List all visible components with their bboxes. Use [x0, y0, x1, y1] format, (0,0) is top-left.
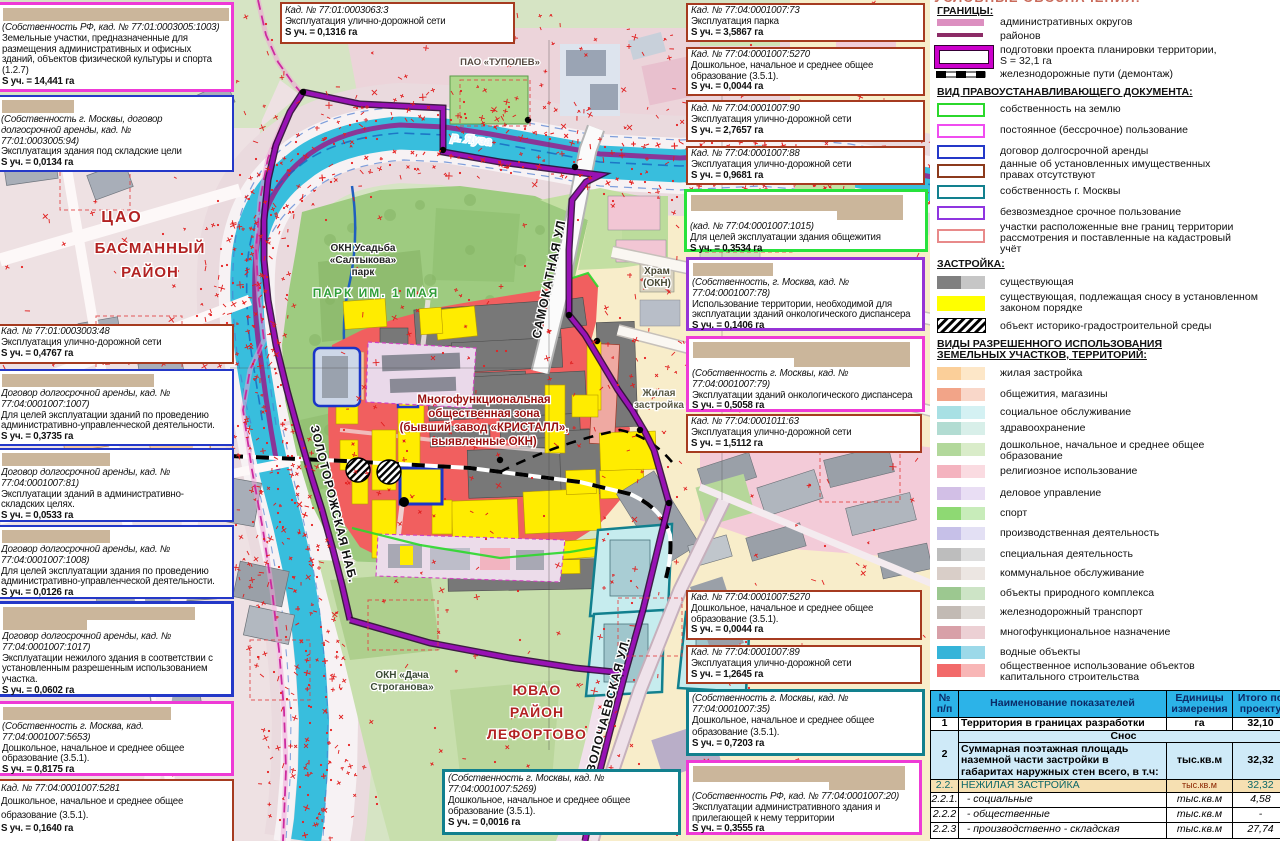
svg-text:парк: парк — [352, 267, 376, 278]
svg-text:общественная зона: общественная зона — [428, 408, 540, 420]
svg-text:(ОКН): (ОКН) — [643, 278, 671, 289]
svg-text:ЦАО: ЦАО — [101, 209, 142, 226]
svg-text:ЮВАО: ЮВАО — [513, 682, 562, 698]
svg-text:Строганова»: Строганова» — [370, 682, 434, 693]
svg-text:ЛЕФОРТОВО: ЛЕФОРТОВО — [487, 726, 587, 742]
svg-text:ОКН Усадьба: ОКН Усадьба — [331, 242, 396, 254]
svg-text:Храм: Храм — [644, 266, 670, 277]
svg-text:БАСМАННЫЙ: БАСМАННЫЙ — [95, 239, 206, 257]
svg-text:«Салтыкова»: «Салтыкова» — [330, 255, 397, 266]
svg-text:(бывший завод «КРИСТАЛЛ»,: (бывший завод «КРИСТАЛЛ», — [400, 422, 569, 434]
svg-text:ПАРК ИМ. 1 МАЯ: ПАРК ИМ. 1 МАЯ — [313, 286, 440, 300]
svg-text:выявленные ОКН): выявленные ОКН) — [431, 436, 537, 448]
svg-text:Жилая: Жилая — [642, 388, 676, 399]
svg-text:РАЙОН: РАЙОН — [121, 263, 179, 281]
svg-text:ПАО «ТУПОЛЕВ»: ПАО «ТУПОЛЕВ» — [460, 57, 540, 68]
svg-text:Многофункциональная: Многофункциональная — [417, 394, 550, 406]
svg-text:РАЙОН: РАЙОН — [510, 703, 564, 720]
svg-text:ОКН «Дача: ОКН «Дача — [375, 670, 429, 681]
svg-text:застройка: застройка — [634, 400, 684, 411]
